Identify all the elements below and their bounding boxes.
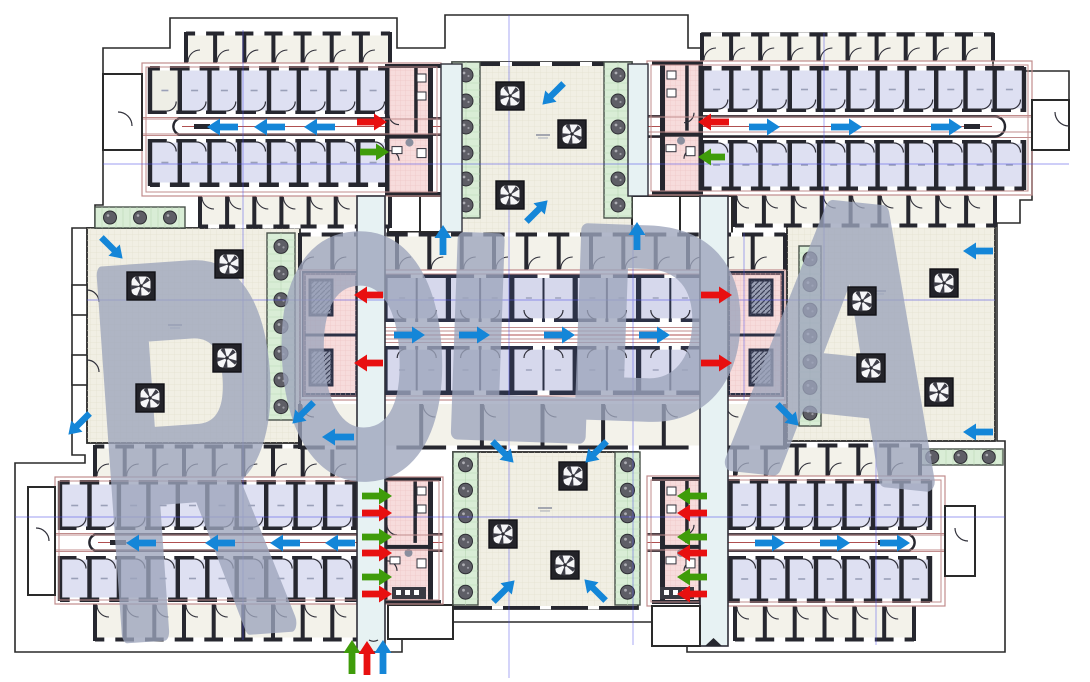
svg-text:O: O	[269, 167, 455, 544]
svg-text:D: D	[563, 172, 749, 475]
svg-text:A: A	[716, 119, 971, 563]
